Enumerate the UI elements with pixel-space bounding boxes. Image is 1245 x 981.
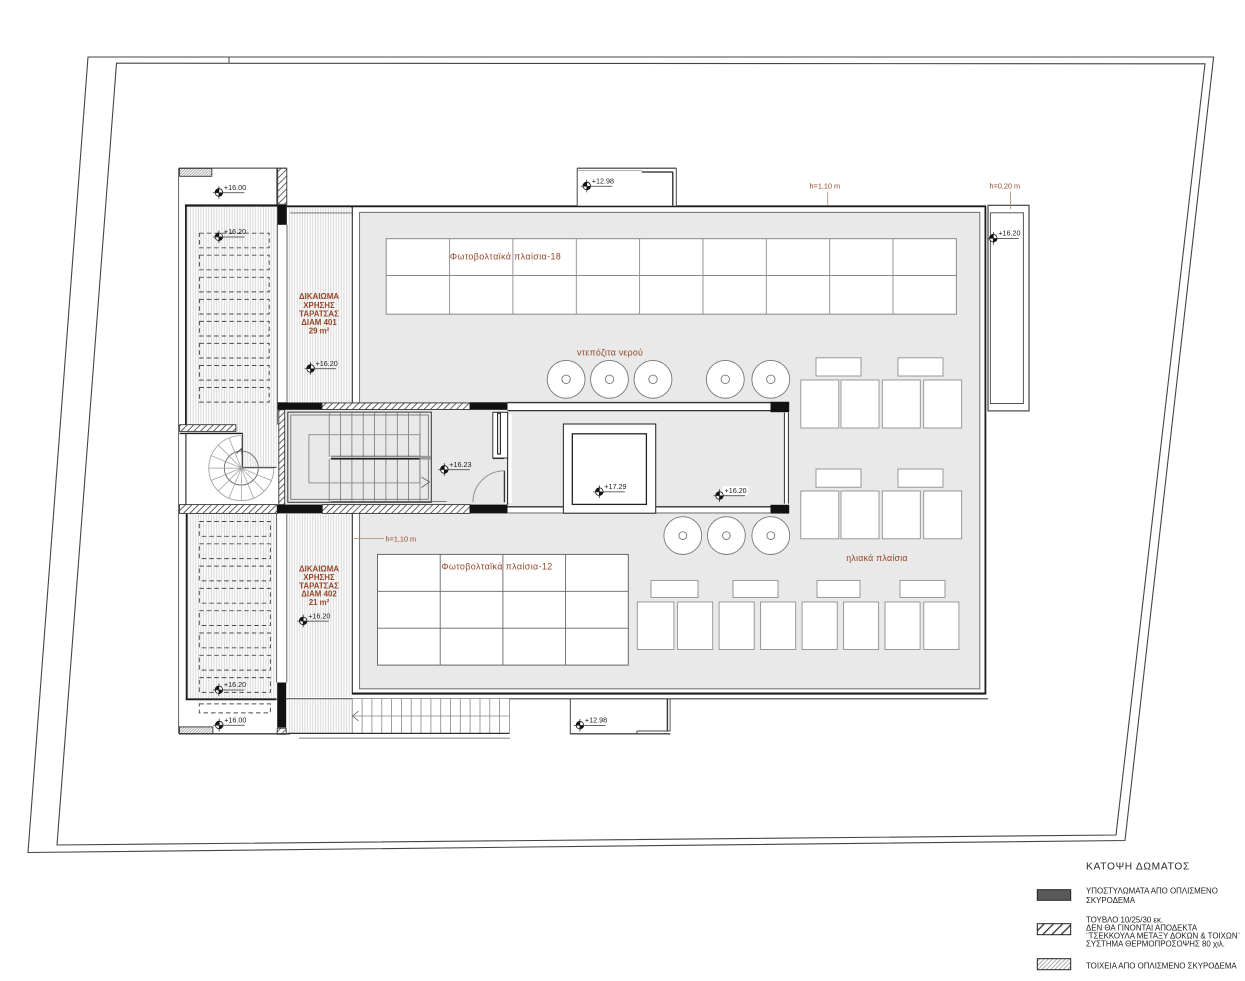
svg-text:21 m²: 21 m² xyxy=(309,598,330,607)
svg-text:ΤΟΙΧΕΙΑ ΑΠΟ ΟΠΛΙΣΜΕΝΟ ΣΚΥΡΟΔΕΜ: ΤΟΙΧΕΙΑ ΑΠΟ ΟΠΛΙΣΜΕΝΟ ΣΚΥΡΟΔΕΜΑ xyxy=(1086,961,1237,970)
svg-text:h=0,20 m: h=0,20 m xyxy=(990,182,1021,191)
svg-text:ηλιακά πλαίσια: ηλιακά πλαίσια xyxy=(846,553,908,563)
svg-text:+16.20: +16.20 xyxy=(224,227,246,236)
svg-text:29 m²: 29 m² xyxy=(309,327,330,336)
svg-text:h=1,10 m: h=1,10 m xyxy=(810,182,841,191)
svg-text:+16.20: +16.20 xyxy=(308,611,330,620)
svg-text:+16.00: +16.00 xyxy=(224,183,246,192)
svg-text:ΥΠΟΣΤΥΛΩΜΑΤΑ ΑΠΟ ΟΠΛΙΣΜΕΝΟ: ΥΠΟΣΤΥΛΩΜΑΤΑ ΑΠΟ ΟΠΛΙΣΜΕΝΟ xyxy=(1086,886,1218,895)
svg-text:h=1,10 m: h=1,10 m xyxy=(386,535,417,544)
svg-text:+16.20: +16.20 xyxy=(316,359,338,368)
svg-text:+12.98: +12.98 xyxy=(585,716,607,725)
svg-text:+12.98: +12.98 xyxy=(592,176,614,185)
svg-text:ΣΥΣΤΗΜΑ ΘΕΡΜΟΠΡΟΣΟΨΗΣ 80 χιλ.: ΣΥΣΤΗΜΑ ΘΕΡΜΟΠΡΟΣΟΨΗΣ 80 χιλ. xyxy=(1086,940,1225,949)
svg-text:+16.00: +16.00 xyxy=(224,715,246,724)
svg-text:+16.23: +16.23 xyxy=(449,460,471,469)
svg-text:+17.29: +17.29 xyxy=(604,482,626,491)
svg-text:+16.20: +16.20 xyxy=(224,680,246,689)
svg-text:ντεπόζιτα νερού: ντεπόζιτα νερού xyxy=(577,347,643,357)
svg-text:Φωτοβολταϊκά πλαίσια-12: Φωτοβολταϊκά πλαίσια-12 xyxy=(441,561,552,571)
svg-text:+16.20: +16.20 xyxy=(998,229,1020,238)
svg-text:+16.20: +16.20 xyxy=(725,486,747,495)
svg-text:Φωτοβολταϊκά πλαίσια-18: Φωτοβολταϊκά πλαίσια-18 xyxy=(450,251,561,261)
svg-text:ΣΚΥΡΟΔΕΜΑ: ΣΚΥΡΟΔΕΜΑ xyxy=(1086,896,1136,905)
svg-text:ΚΑΤΟΨΗ ΔΩΜΑΤΟΣ: ΚΑΤΟΨΗ ΔΩΜΑΤΟΣ xyxy=(1086,862,1190,873)
